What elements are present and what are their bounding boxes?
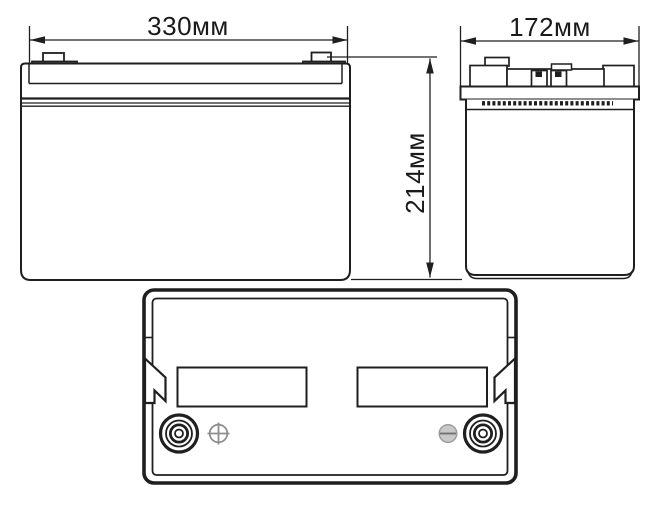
front-view [21,53,350,281]
dim-depth-label: 172мм [509,12,591,42]
minus-in-circle-icon [439,425,457,443]
arrowhead-top [426,59,434,74]
side-body-outline [466,100,634,276]
arrowhead-left [461,37,476,45]
label-recess-left [178,368,307,407]
top-view [144,290,516,483]
negative-terminal [465,415,502,452]
arrowhead-left [30,36,45,44]
label-recess-right [358,368,488,407]
side-small-tab [552,64,572,70]
side-top-details [470,58,634,87]
side-view [461,58,640,279]
positive-terminal [161,415,198,452]
side-left-block [470,66,507,87]
front-body-outline [21,64,350,281]
side-post-right-slot [555,72,562,78]
battery-dimensional-drawing: 330мм 172мм 214мм [0,0,654,508]
dim-width: 330мм [30,11,348,63]
side-right-block [603,66,634,87]
dim-width-label: 330мм [147,11,229,41]
drawing-canvas: 330мм 172мм 214мм [0,0,654,508]
side-post-left-slot [536,72,543,78]
arrowhead-right [333,36,348,44]
arrowhead-right [624,37,639,45]
side-lid-band [461,87,640,100]
dim-height-label: 214мм [400,132,430,214]
arrowhead-bottom [426,263,434,278]
